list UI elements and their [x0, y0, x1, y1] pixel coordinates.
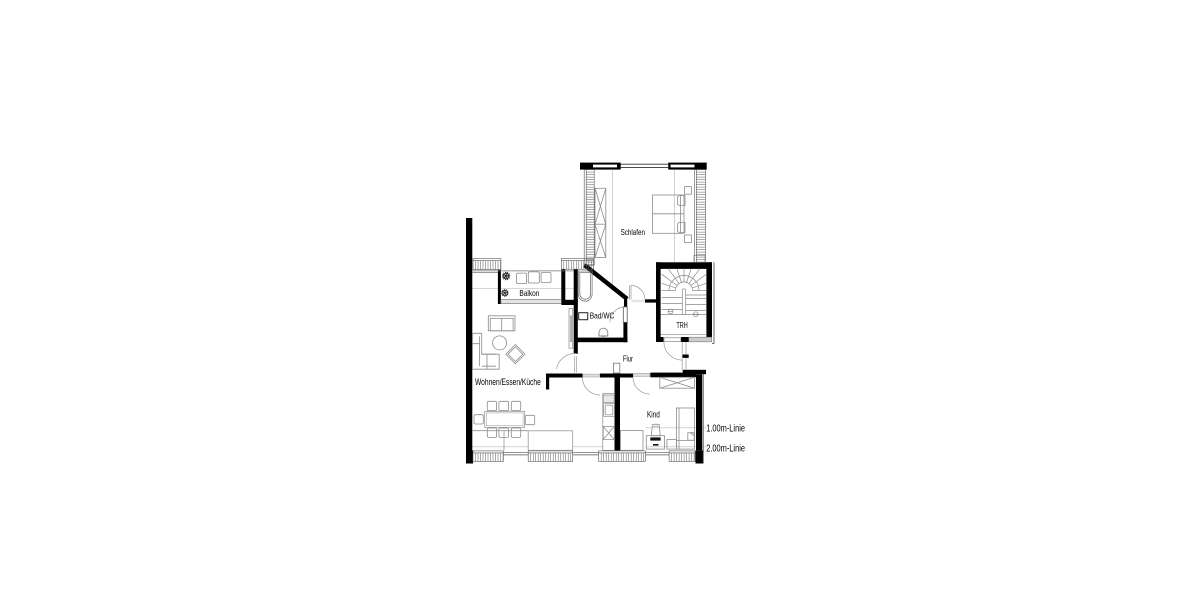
- svg-text:Wohnen/Essen/Küche: Wohnen/Essen/Küche: [475, 377, 541, 387]
- svg-text:Flur: Flur: [623, 355, 633, 364]
- svg-text:Bad/WC: Bad/WC: [590, 311, 615, 320]
- svg-text:Balkon: Balkon: [519, 289, 539, 298]
- svg-text:Schlafen: Schlafen: [621, 228, 646, 237]
- svg-text:2.00m-Linie: 2.00m-Linie: [706, 444, 745, 455]
- svg-text:1.00m-Linie: 1.00m-Linie: [706, 424, 745, 435]
- svg-text:Kind: Kind: [647, 410, 660, 420]
- svg-text:TRH: TRH: [676, 321, 687, 330]
